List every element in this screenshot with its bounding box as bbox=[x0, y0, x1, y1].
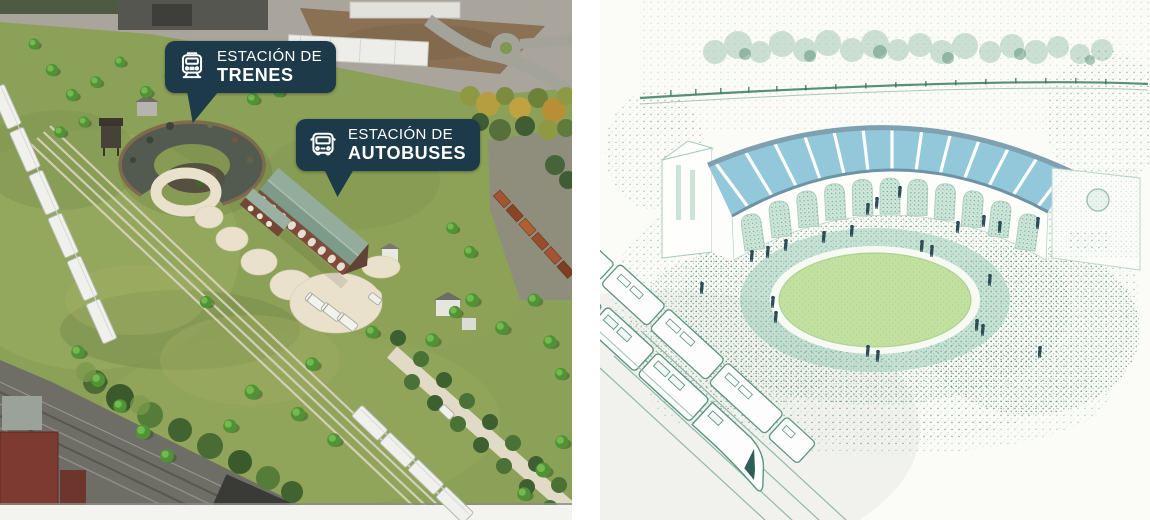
roundabout bbox=[491, 33, 521, 63]
roundhouse-sketch bbox=[600, 0, 1150, 520]
sketch-illustration-panel bbox=[600, 0, 1150, 520]
circular-lawn bbox=[770, 246, 980, 354]
right-headhouse bbox=[1052, 168, 1140, 270]
callout-trenes-line1: ESTACIÓN DE bbox=[217, 48, 322, 65]
callout-trenes: ESTACIÓN DE TRENES bbox=[165, 41, 336, 93]
bus-icon bbox=[307, 129, 339, 161]
callout-trenes-line2: TRENES bbox=[217, 65, 322, 86]
photo-bottom-edge bbox=[0, 503, 572, 505]
callout-autobuses-line2: AUTOBUSES bbox=[348, 143, 466, 164]
left-headhouse bbox=[662, 148, 712, 258]
train-icon bbox=[176, 51, 208, 83]
aerial-render-panel: ESTACIÓN DE TRENES ESTACIÓN DE AUTOBUSES bbox=[0, 0, 572, 520]
panel-divider bbox=[572, 0, 600, 520]
callout-autobuses: ESTACIÓN DE AUTOBUSES bbox=[296, 119, 480, 171]
callout-autobuses-line1: ESTACIÓN DE bbox=[348, 126, 466, 143]
two-panel-illustration: ESTACIÓN DE TRENES ESTACIÓN DE AUTOBUSES bbox=[0, 0, 1150, 520]
